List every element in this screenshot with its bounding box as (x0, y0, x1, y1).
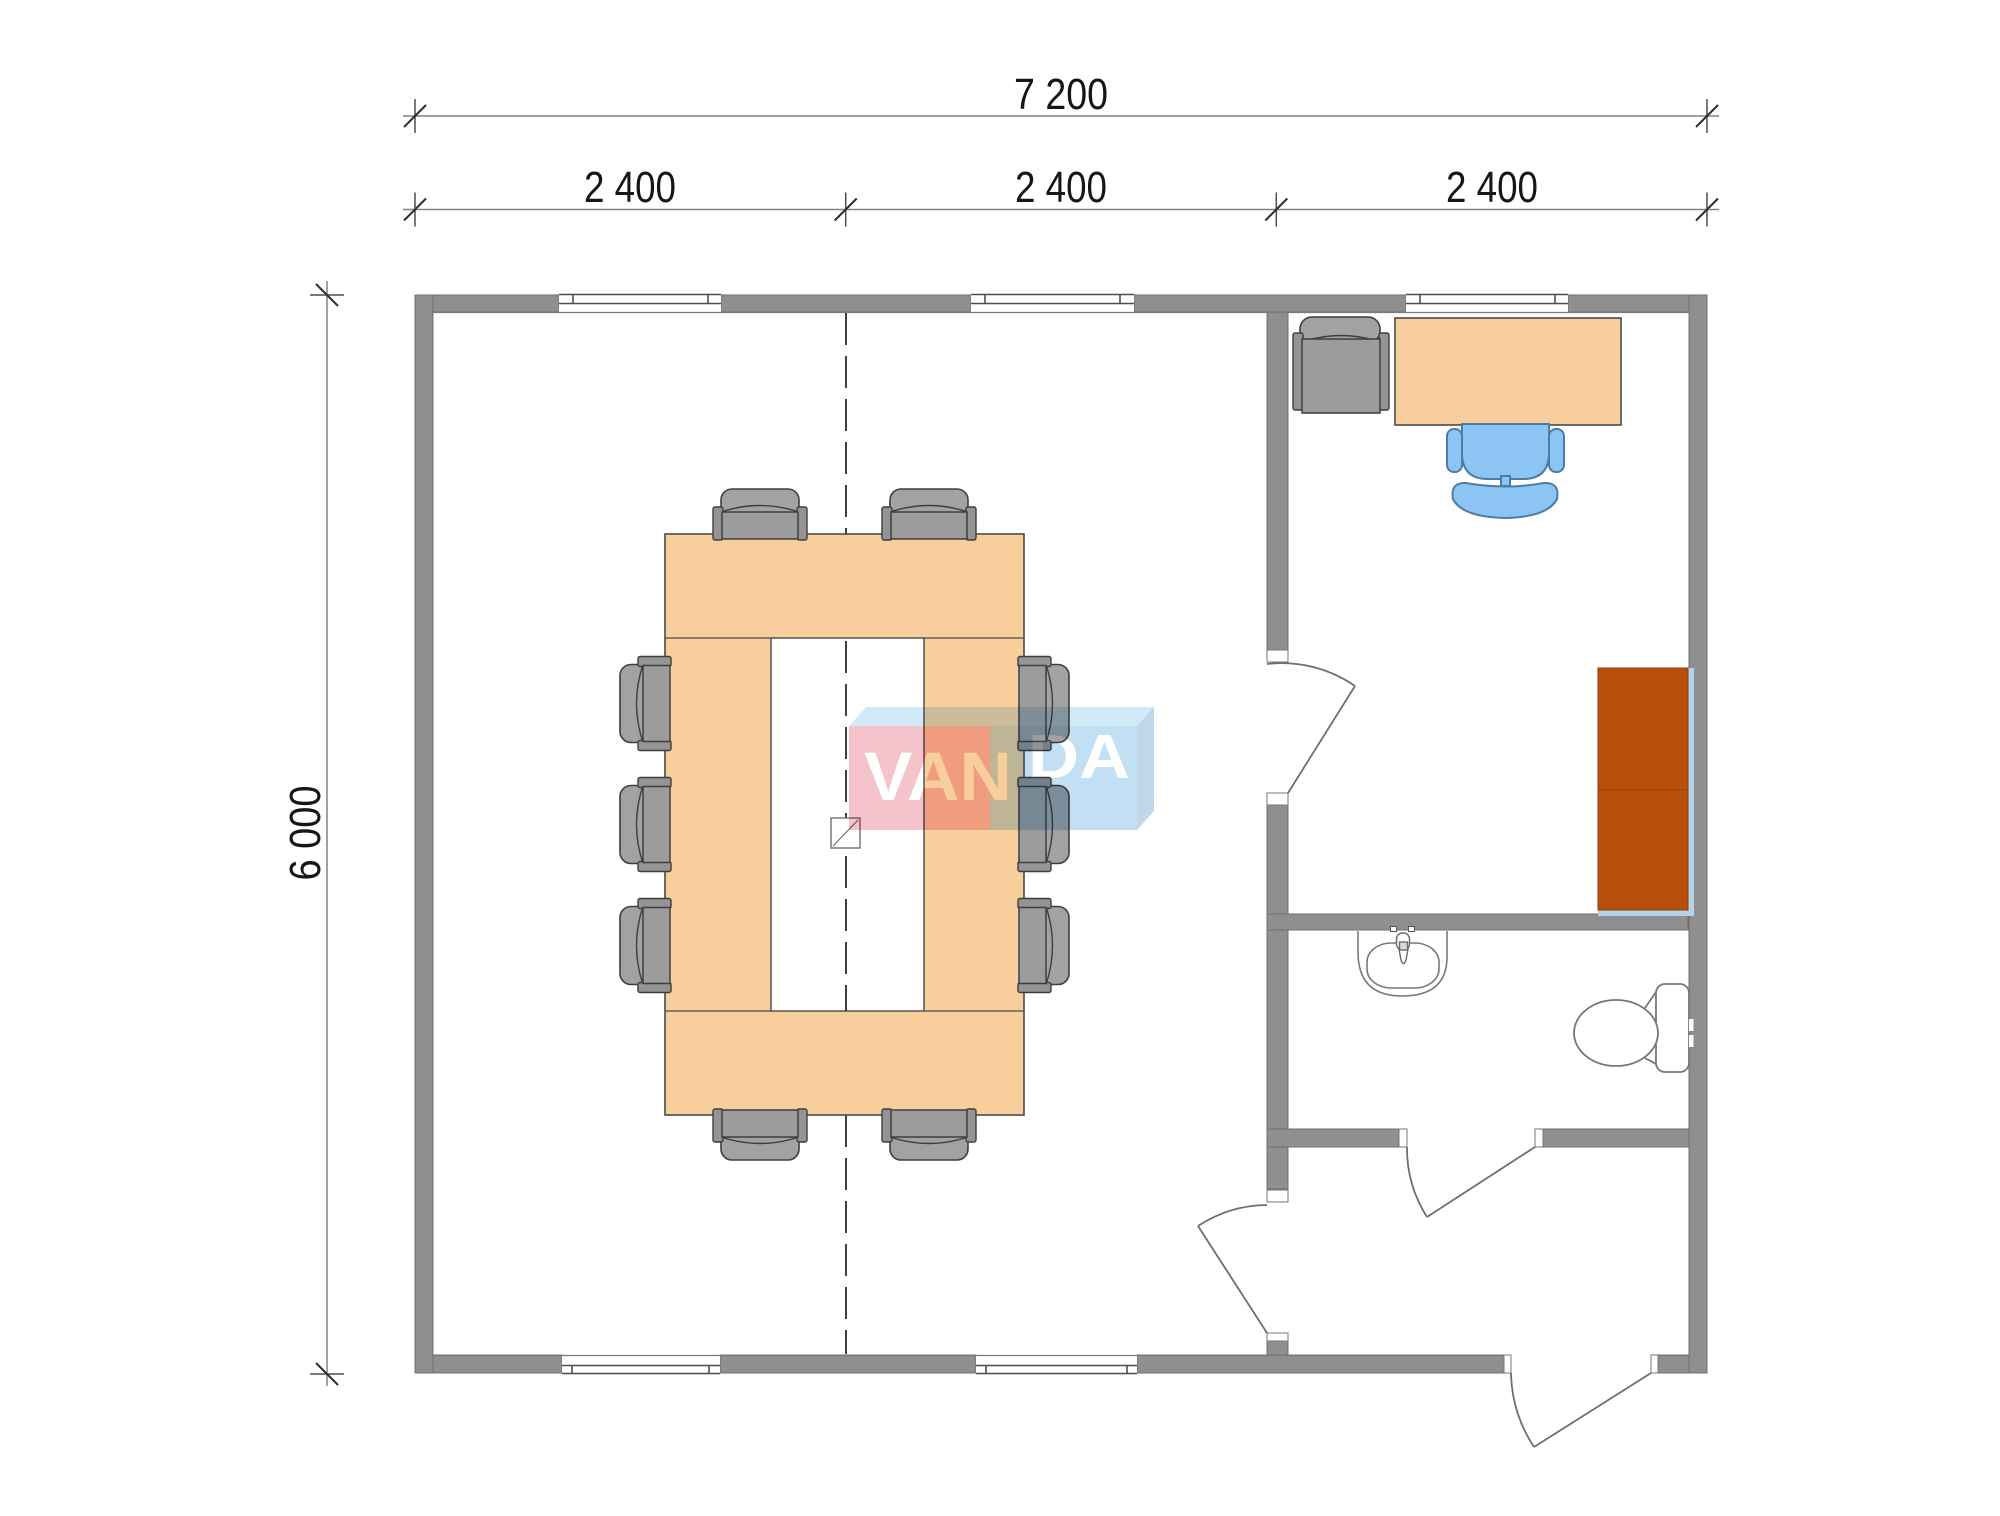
svg-text:2 400: 2 400 (1015, 163, 1107, 212)
svg-text:2 400: 2 400 (1446, 163, 1538, 212)
svg-text:DA: DA (1028, 723, 1130, 792)
svg-text:VAN: VAN (864, 738, 1012, 815)
svg-text:7 200: 7 200 (1014, 70, 1108, 119)
svg-text:2 400: 2 400 (584, 163, 676, 212)
svg-text:6 000: 6 000 (281, 786, 330, 881)
